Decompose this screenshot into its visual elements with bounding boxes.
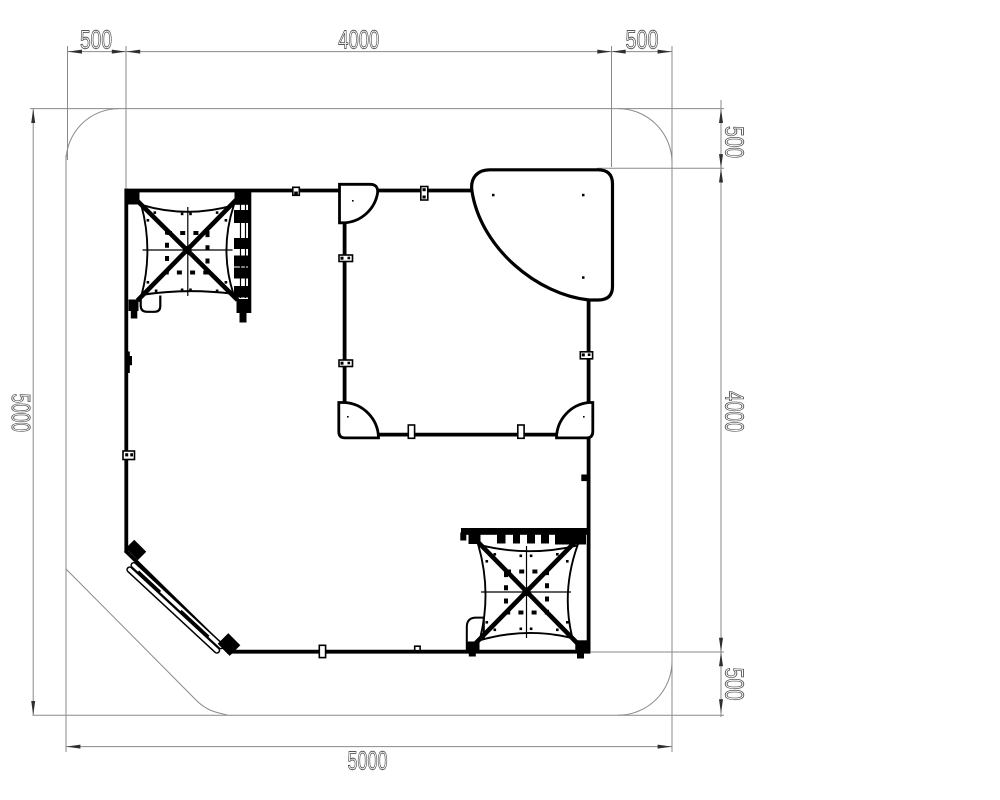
svg-text:5000: 5000 <box>6 394 36 433</box>
svg-text:500: 500 <box>80 24 112 54</box>
svg-text:500: 500 <box>626 24 659 54</box>
svg-text:500: 500 <box>719 668 749 701</box>
svg-text:5000: 5000 <box>348 746 388 776</box>
svg-text:4000: 4000 <box>338 24 379 54</box>
svg-text:500: 500 <box>719 126 749 158</box>
svg-text:4000: 4000 <box>719 391 749 432</box>
